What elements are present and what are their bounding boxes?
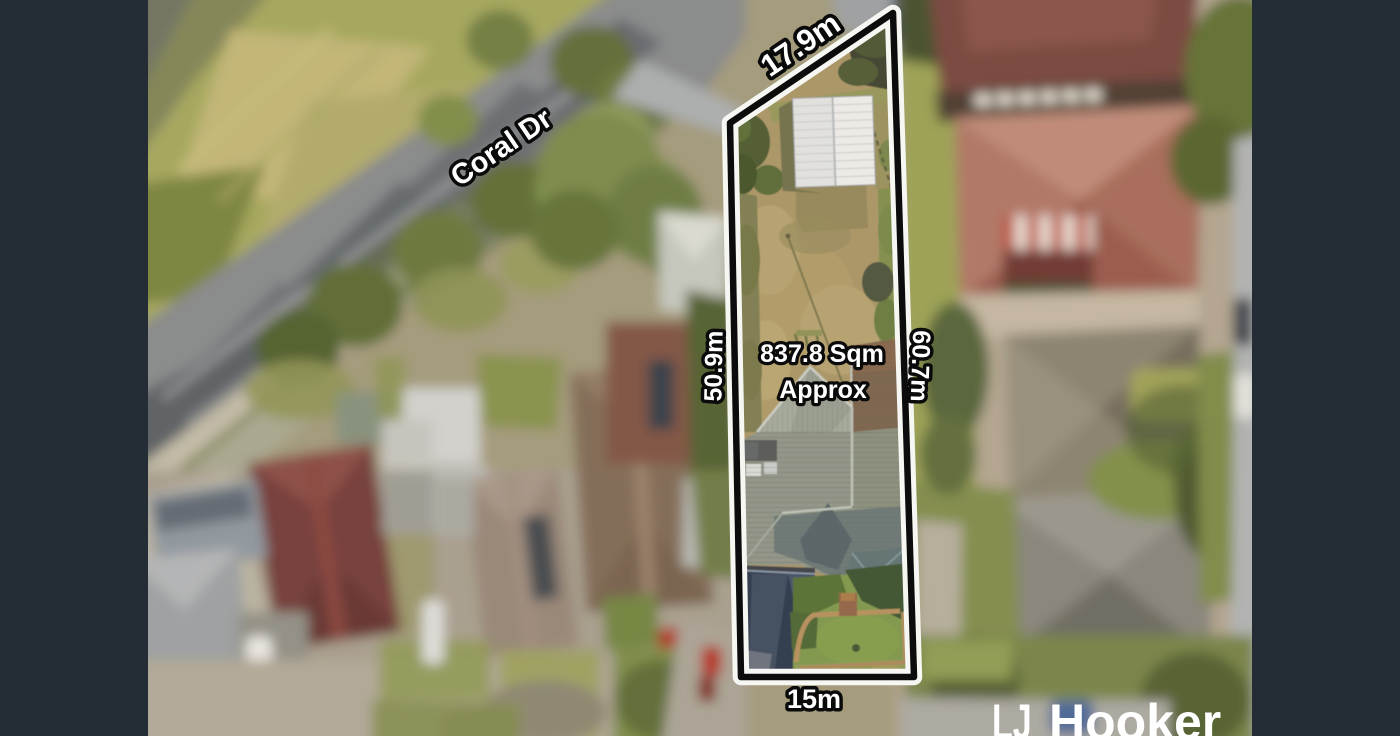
svg-text:50.9m: 50.9m xyxy=(699,330,728,401)
svg-text:Approx: Approx xyxy=(779,376,867,404)
svg-text:837.8 Sqm: 837.8 Sqm xyxy=(760,340,884,368)
svg-text:LJ: LJ xyxy=(992,695,1032,736)
svg-text:15m: 15m xyxy=(787,684,841,714)
svg-text:60.7m: 60.7m xyxy=(905,330,935,402)
svg-text:Hooker: Hooker xyxy=(1049,694,1221,736)
